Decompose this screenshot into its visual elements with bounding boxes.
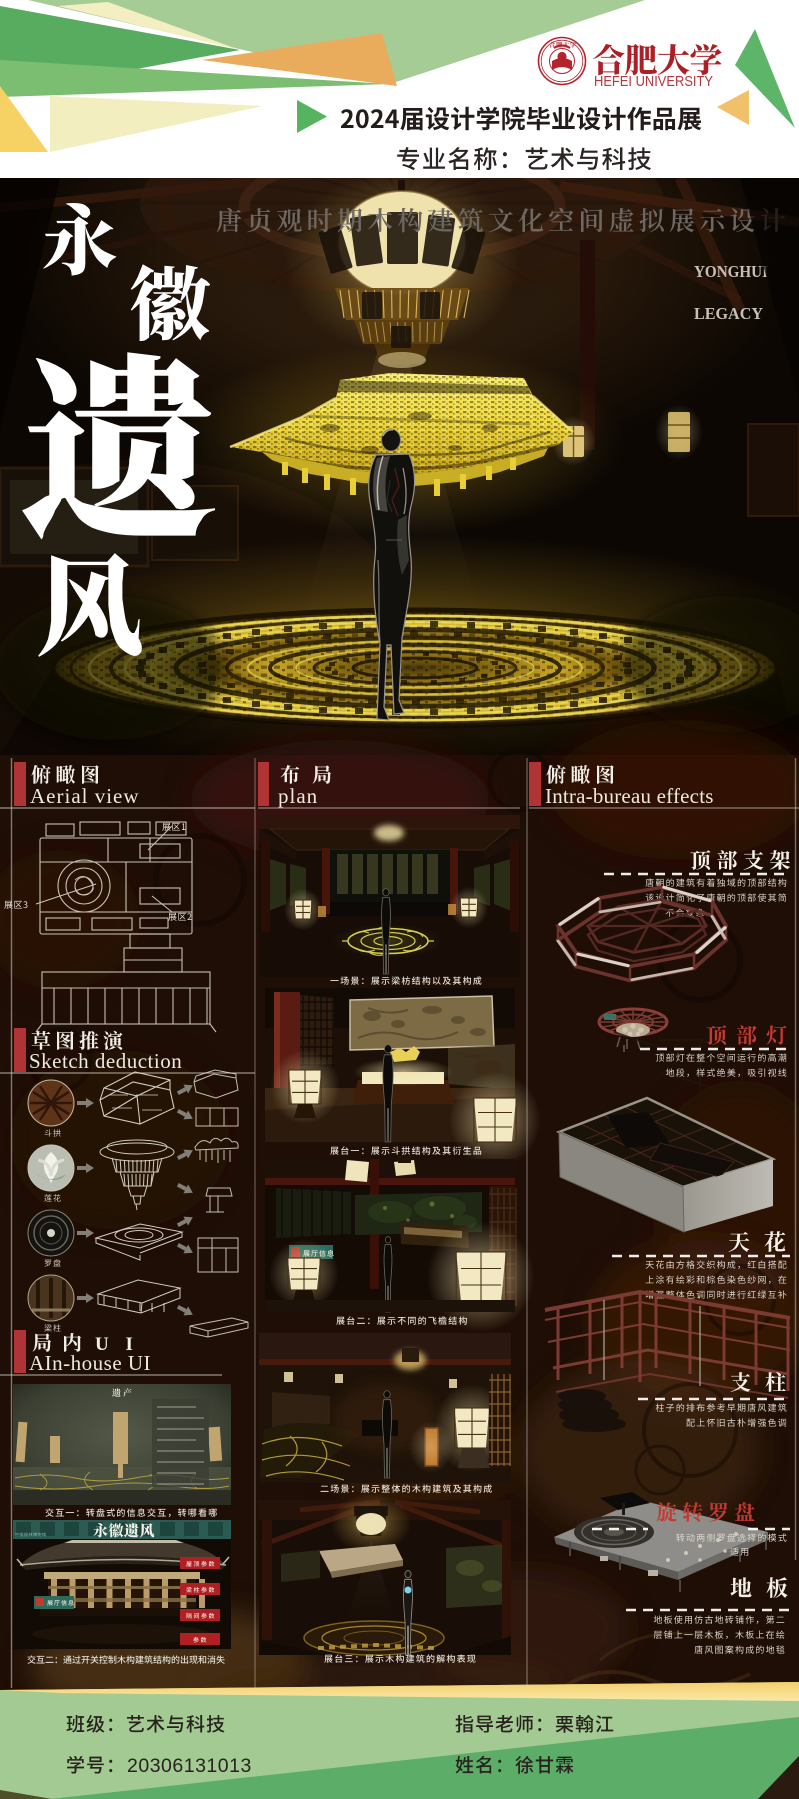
- svg-text:plan: plan: [278, 784, 318, 808]
- svg-text:HEFEI UNIVERSITY: HEFEI UNIVERSITY: [594, 73, 713, 90]
- svg-text:LEGACY: LEGACY: [694, 304, 763, 323]
- svg-text:20306131013: 20306131013: [127, 1755, 252, 1777]
- svg-text:AIn-house UI: AIn-house UI: [29, 1351, 151, 1375]
- svg-text:Aerial view: Aerial view: [30, 784, 140, 808]
- svg-text:YONGHUI: YONGHUI: [694, 262, 768, 281]
- svg-text:Intra-bureau effects: Intra-bureau effects: [545, 784, 714, 808]
- svg-text:Sketch deduction: Sketch deduction: [29, 1049, 182, 1073]
